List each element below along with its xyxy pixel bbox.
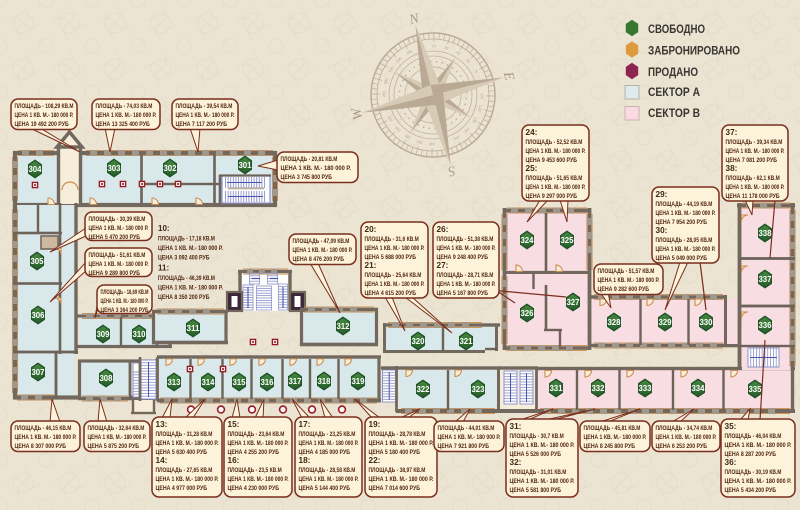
svg-text:334: 334 xyxy=(691,384,705,393)
svg-text:ПЛОЩАДЬ - 44,19 КВ.М: ПЛОЩАДЬ - 44,19 КВ.М xyxy=(656,201,713,208)
svg-text:ЦЕНА 9 453 600 РУБ: ЦЕНА 9 453 600 РУБ xyxy=(526,157,578,164)
svg-text:38:: 38: xyxy=(726,164,738,173)
svg-text:ПЛОЩАДЬ - 47,09 КВ.М: ПЛОЩАДЬ - 47,09 КВ.М xyxy=(293,238,350,245)
svg-text:307: 307 xyxy=(31,368,45,377)
svg-text:ЦЕНА 1 КВ. М.- 180 000 Р.: ЦЕНА 1 КВ. М.- 180 000 Р. xyxy=(365,245,425,252)
svg-text:ЦЕНА 4 255 200 РУБ: ЦЕНА 4 255 200 РУБ xyxy=(228,449,280,456)
svg-text:ЦЕНА 1 КВ. М.- 180 000 Р.: ЦЕНА 1 КВ. М.- 180 000 Р. xyxy=(156,476,219,483)
svg-text:ПЛОЩАДЬ - 27,65 КВ.М: ПЛОЩАДЬ - 27,65 КВ.М xyxy=(156,467,213,474)
svg-text:ПЛОЩАДЬ - 51,57 КВ.М: ПЛОЩАДЬ - 51,57 КВ.М xyxy=(598,268,655,275)
svg-text:25:: 25: xyxy=(526,164,538,173)
svg-text:ПЛОЩАДЬ - 17,18 КВ.М: ПЛОЩАДЬ - 17,18 КВ.М xyxy=(158,236,215,243)
svg-text:ЦЕНА 5 180 400 РУБ: ЦЕНА 5 180 400 РУБ xyxy=(369,449,421,456)
svg-text:330: 330 xyxy=(699,318,713,327)
svg-text:285: 285 xyxy=(382,91,386,97)
svg-text:ЦЕНА 1 КВ. М.- 180 000 Р.: ЦЕНА 1 КВ. М.- 180 000 Р. xyxy=(15,112,74,119)
svg-text:24:: 24: xyxy=(526,128,538,137)
svg-text:335: 335 xyxy=(748,385,762,394)
svg-text:ПЛОЩАДЬ - 52,52 КВ.М: ПЛОЩАДЬ - 52,52 КВ.М xyxy=(526,139,583,146)
svg-text:337: 337 xyxy=(758,275,772,284)
svg-text:ЦЕНА 19 492 200 РУБ: ЦЕНА 19 492 200 РУБ xyxy=(15,121,69,128)
svg-text:15: 15 xyxy=(432,44,436,48)
svg-text:СВОБОДНО: СВОБОДНО xyxy=(648,24,705,36)
svg-text:10:: 10: xyxy=(158,224,170,233)
svg-text:ЦЕНА 1 КВ. М.- 180 000 Р.: ЦЕНА 1 КВ. М.- 180 000 Р. xyxy=(437,281,496,288)
svg-text:ПЛОЩАДЬ - 38,97 КВ.М: ПЛОЩАДЬ - 38,97 КВ.М xyxy=(369,467,426,474)
svg-text:29:: 29: xyxy=(656,190,668,199)
svg-text:ЦЕНА 1 КВ. М.- 180 000 Р.: ЦЕНА 1 КВ. М.- 180 000 Р. xyxy=(656,246,716,253)
svg-text:ПЛОЩАДЬ - 30,7 КВ.М: ПЛОЩАДЬ - 30,7 КВ.М xyxy=(510,433,564,440)
svg-text:ЦЕНА 3 745 800 РУБ: ЦЕНА 3 745 800 РУБ xyxy=(281,174,333,181)
svg-text:ЦЕНА 1 КВ. М.- 180 000 Р.: ЦЕНА 1 КВ. М.- 180 000 Р. xyxy=(89,261,149,268)
svg-text:ЦЕНА 1 КВ. М.- 180 000 Р.: ЦЕНА 1 КВ. М.- 180 000 Р. xyxy=(89,225,149,232)
svg-text:ЦЕНА 1 КВ. М.- 180 000 Р.: ЦЕНА 1 КВ. М.- 180 000 Р. xyxy=(725,442,792,449)
svg-text:ЦЕНА 1 КВ. М.- 180 000 Р.: ЦЕНА 1 КВ. М.- 180 000 Р. xyxy=(101,298,149,305)
svg-text:ЦЕНА 1 КВ. М.- 180 000 Р.: ЦЕНА 1 КВ. М.- 180 000 Р. xyxy=(15,434,77,441)
svg-text:ЦЕНА 13 325 400 РУБ: ЦЕНА 13 325 400 РУБ xyxy=(96,121,150,128)
svg-text:ЦЕНА 1 КВ. М.- 180 000 Р.: ЦЕНА 1 КВ. М.- 180 000 Р. xyxy=(176,112,235,119)
svg-text:319: 319 xyxy=(351,377,365,386)
svg-text:17:: 17: xyxy=(299,420,311,429)
svg-text:15:: 15: xyxy=(228,420,240,429)
svg-text:ПЛОЩАДЬ - 62,1 КВ.М: ПЛОЩАДЬ - 62,1 КВ.М xyxy=(726,175,780,182)
svg-text:ЦЕНА 5 167 800 РУБ: ЦЕНА 5 167 800 РУБ xyxy=(437,290,489,297)
svg-text:338: 338 xyxy=(758,229,772,238)
svg-text:324: 324 xyxy=(520,236,534,245)
svg-text:ЦЕНА 5 526 000 РУБ: ЦЕНА 5 526 000 РУБ xyxy=(510,451,562,458)
svg-text:ЦЕНА 5 049 000 РУБ: ЦЕНА 5 049 000 РУБ xyxy=(656,255,708,262)
svg-text:ЦЕНА 7 954 200 РУБ: ЦЕНА 7 954 200 РУБ xyxy=(656,219,708,226)
svg-text:ПЛОЩАДЬ - 30,39 КВ.М: ПЛОЩАДЬ - 30,39 КВ.М xyxy=(89,216,146,223)
svg-text:322: 322 xyxy=(416,385,430,394)
svg-text:ЦЕНА 4 230 000 РУБ: ЦЕНА 4 230 000 РУБ xyxy=(228,485,280,492)
svg-text:32:: 32: xyxy=(510,458,522,467)
svg-text:301: 301 xyxy=(238,161,252,170)
svg-text:ЦЕНА 6 253 200 РУБ: ЦЕНА 6 253 200 РУБ xyxy=(656,443,708,450)
svg-text:31:: 31: xyxy=(510,422,522,431)
svg-text:ЦЕНА 4 615 200 РУБ: ЦЕНА 4 615 200 РУБ xyxy=(365,290,417,297)
svg-text:19:: 19: xyxy=(369,420,381,429)
svg-text:ЦЕНА 5 144 400 РУБ: ЦЕНА 5 144 400 РУБ xyxy=(299,485,351,492)
svg-text:ЦЕНА 9 282 600 РУБ: ЦЕНА 9 282 600 РУБ xyxy=(598,286,650,293)
svg-text:336: 336 xyxy=(758,321,772,330)
svg-text:ЦЕНА 7 014 600 РУБ: ЦЕНА 7 014 600 РУБ xyxy=(369,485,421,492)
svg-text:ЦЕНА 1 КВ. М.- 180 000 Р.: ЦЕНА 1 КВ. М.- 180 000 Р. xyxy=(228,476,289,483)
svg-text:ПЛОЩАДЬ - 23,64 КВ.М: ПЛОЩАДЬ - 23,64 КВ.М xyxy=(228,431,285,438)
svg-text:ЦЕНА 1 КВ. М.- 180 000 Р.: ЦЕНА 1 КВ. М.- 180 000 Р. xyxy=(656,210,716,217)
svg-text:326: 326 xyxy=(520,309,534,318)
svg-text:ПЛОЩАДЬ - 108,29 КВ.М: ПЛОЩАДЬ - 108,29 КВ.М xyxy=(15,103,74,110)
svg-text:309: 309 xyxy=(96,330,110,339)
svg-text:ЦЕНА 1 КВ. М.- 180 000 Р.: ЦЕНА 1 КВ. М.- 180 000 Р. xyxy=(369,476,434,483)
svg-text:105: 105 xyxy=(480,93,484,99)
svg-text:СЕКТОР А: СЕКТОР А xyxy=(648,87,700,99)
svg-text:ПЛОЩАДЬ - 20,81 КВ.М: ПЛОЩАДЬ - 20,81 КВ.М xyxy=(281,156,338,163)
svg-text:ЦЕНА 11 178 000 РУБ: ЦЕНА 11 178 000 РУБ xyxy=(726,193,780,200)
svg-text:ЦЕНА 4 185 000 РУБ: ЦЕНА 4 185 000 РУБ xyxy=(299,449,351,456)
svg-text:36:: 36: xyxy=(725,458,737,467)
svg-text:310: 310 xyxy=(132,330,146,339)
svg-text:27:: 27: xyxy=(437,261,449,270)
svg-text:14:: 14: xyxy=(156,456,168,465)
svg-text:СЕКТОР В: СЕКТОР В xyxy=(648,108,700,120)
svg-text:ЦЕНА 5 434 200 РУБ: ЦЕНА 5 434 200 РУБ xyxy=(725,487,777,494)
svg-text:ПЛОЩАДЬ - 31,28 КВ.М: ПЛОЩАДЬ - 31,28 КВ.М xyxy=(156,431,213,438)
svg-text:311: 311 xyxy=(186,324,200,333)
svg-text:ЦЕНА 8 287 200 РУБ: ЦЕНА 8 287 200 РУБ xyxy=(725,451,777,458)
svg-text:ПЛОЩАДЬ - 46,39 КВ.М: ПЛОЩАДЬ - 46,39 КВ.М xyxy=(158,275,215,282)
svg-text:ЦЕНА 1 КВ. М.- 180 000 Р.: ЦЕНА 1 КВ. М.- 180 000 Р. xyxy=(437,245,496,252)
svg-text:ЦЕНА 1 КВ. М.- 180 000 Р.: ЦЕНА 1 КВ. М.- 180 000 Р. xyxy=(656,434,717,441)
svg-text:ПЛОЩАДЬ - 46,15 КВ.М: ПЛОЩАДЬ - 46,15 КВ.М xyxy=(15,425,72,432)
svg-text:ЦЕНА 1 КВ. М.- 180 000 Р.: ЦЕНА 1 КВ. М.- 180 000 Р. xyxy=(299,476,359,483)
svg-text:ЦЕНА 1 КВ. М.- 180 000 Р.: ЦЕНА 1 КВ. М.- 180 000 Р. xyxy=(510,442,575,449)
svg-text:317: 317 xyxy=(288,377,302,386)
svg-text:ПЛОЩАДЬ - 74,03 КВ.М: ПЛОЩАДЬ - 74,03 КВ.М xyxy=(96,103,153,110)
svg-text:ПЛОЩАДЬ - 28,71 КВ.М: ПЛОЩАДЬ - 28,71 КВ.М xyxy=(437,272,494,279)
svg-text:ЦЕНА 4 977 000 РУБ: ЦЕНА 4 977 000 РУБ xyxy=(156,485,208,492)
svg-text:331: 331 xyxy=(549,384,563,393)
svg-text:ПЛОЩАДЬ - 39,54 КВ.М: ПЛОЩАДЬ - 39,54 КВ.М xyxy=(176,103,233,110)
svg-text:11:: 11: xyxy=(158,264,169,273)
svg-text:316: 316 xyxy=(260,378,274,387)
svg-text:35:: 35: xyxy=(725,422,737,431)
svg-text:ПЛОЩАДЬ - 46,04 КВ.М: ПЛОЩАДЬ - 46,04 КВ.М xyxy=(725,433,782,440)
svg-text:ЦЕНА 9 248 400 РУБ: ЦЕНА 9 248 400 РУБ xyxy=(437,254,489,261)
svg-text:ЦЕНА 7 921 800 РУБ: ЦЕНА 7 921 800 РУБ xyxy=(438,443,490,450)
svg-text:ЦЕНА 8 350 200 РУБ: ЦЕНА 8 350 200 РУБ xyxy=(158,294,210,301)
svg-text:ЦЕНА 1 КВ. М.- 180 000 Р.: ЦЕНА 1 КВ. М.- 180 000 Р. xyxy=(726,184,785,191)
svg-text:304: 304 xyxy=(28,165,42,174)
svg-text:16:: 16: xyxy=(228,456,240,465)
svg-text:ЦЕНА 1 КВ. М.- 180 000 Р.: ЦЕНА 1 КВ. М.- 180 000 Р. xyxy=(510,478,575,485)
svg-text:ПЛОЩАДЬ - 31,01 КВ.М: ПЛОЩАДЬ - 31,01 КВ.М xyxy=(510,469,567,476)
svg-text:30:: 30: xyxy=(656,226,668,235)
svg-text:ЦЕНА 1 КВ. М.- 180 000 Р.: ЦЕНА 1 КВ. М.- 180 000 Р. xyxy=(158,285,223,292)
svg-text:ПРОДАНО: ПРОДАНО xyxy=(648,67,698,79)
svg-text:ПЛОЩАДЬ - 30,19 КВ.М: ПЛОЩАДЬ - 30,19 КВ.М xyxy=(725,469,782,476)
svg-text:ПЛОЩАДЬ - 45,81 КВ.М: ПЛОЩАДЬ - 45,81 КВ.М xyxy=(584,425,641,432)
svg-text:312: 312 xyxy=(336,322,350,331)
svg-text:ЦЕНА 9 297 000 РУБ: ЦЕНА 9 297 000 РУБ xyxy=(526,193,578,200)
svg-text:314: 314 xyxy=(201,378,215,387)
svg-text:ПЛОЩАДЬ - 39,34 КВ.М: ПЛОЩАДЬ - 39,34 КВ.М xyxy=(726,139,783,146)
svg-text:306: 306 xyxy=(31,311,45,320)
svg-text:21:: 21: xyxy=(365,261,377,270)
svg-text:ЦЕНА 9 289 800 РУБ: ЦЕНА 9 289 800 РУБ xyxy=(89,270,141,277)
svg-text:325: 325 xyxy=(560,236,574,245)
svg-text:ПЛОЩАДЬ - 44,01 КВ.М: ПЛОЩАДЬ - 44,01 КВ.М xyxy=(438,425,495,432)
svg-text:ЦЕНА 3 092 400 РУБ: ЦЕНА 3 092 400 РУБ xyxy=(158,255,210,262)
svg-text:ЦЕНА 1 КВ. М.- 180 000 Р.: ЦЕНА 1 КВ. М.- 180 000 Р. xyxy=(725,478,792,485)
svg-text:ЦЕНА 1 КВ. М.- 180 000 Р.: ЦЕНА 1 КВ. М.- 180 000 Р. xyxy=(96,112,157,119)
svg-text:ЦЕНА 5 581 800 РУБ: ЦЕНА 5 581 800 РУБ xyxy=(510,487,562,494)
svg-text:ЦЕНА 5 630 400 РУБ: ЦЕНА 5 630 400 РУБ xyxy=(156,449,208,456)
svg-text:333: 333 xyxy=(638,384,652,393)
svg-text:ПЛОЩАДЬ - 51,61 КВ.М: ПЛОЩАДЬ - 51,61 КВ.М xyxy=(89,252,146,259)
svg-text:ЦЕНА 1 КВ. М.- 180 000 Р.: ЦЕНА 1 КВ. М.- 180 000 Р. xyxy=(228,440,289,447)
svg-text:18:: 18: xyxy=(299,456,311,465)
svg-text:ЦЕНА 8 476 200 РУБ: ЦЕНА 8 476 200 РУБ xyxy=(293,256,345,263)
svg-text:ЦЕНА 1 КВ. М.- 180 000 Р.: ЦЕНА 1 КВ. М.- 180 000 Р. xyxy=(156,440,219,447)
svg-text:323: 323 xyxy=(471,385,485,394)
svg-text:315: 315 xyxy=(232,378,246,387)
svg-text:ПЛОЩАДЬ - 32,64 КВ.М: ПЛОЩАДЬ - 32,64 КВ.М xyxy=(88,425,145,432)
svg-text:ЦЕНА 7 081 200 РУБ: ЦЕНА 7 081 200 РУБ xyxy=(726,157,778,164)
svg-text:308: 308 xyxy=(99,374,113,383)
svg-text:ЦЕНА 1 КВ. М.- 180 000 Р.: ЦЕНА 1 КВ. М.- 180 000 Р. xyxy=(299,440,359,447)
svg-text:ПЛОЩАДЬ - 28,78 КВ.М: ПЛОЩАДЬ - 28,78 КВ.М xyxy=(369,431,426,438)
svg-text:320: 320 xyxy=(411,337,425,346)
svg-text:ЦЕНА 3 364 200 РУБ: ЦЕНА 3 364 200 РУБ xyxy=(101,307,149,314)
svg-text:20:: 20: xyxy=(365,225,377,234)
svg-text:ЦЕНА 1 КВ. М.- 180 000 Р.: ЦЕНА 1 КВ. М.- 180 000 Р. xyxy=(526,148,586,155)
svg-text:302: 302 xyxy=(163,164,177,173)
svg-text:ПЛОЩАДЬ - 18,69 КВ.М: ПЛОЩАДЬ - 18,69 КВ.М xyxy=(101,289,149,296)
svg-text:ЦЕНА 5 875 200 РУБ: ЦЕНА 5 875 200 РУБ xyxy=(88,443,140,450)
svg-text:ЦЕНА 1 КВ. М.- 180 000 Р.: ЦЕНА 1 КВ. М.- 180 000 Р. xyxy=(584,434,647,441)
svg-text:ЦЕНА 1 КВ. М.- 180 000 Р.: ЦЕНА 1 КВ. М.- 180 000 Р. xyxy=(598,277,660,284)
svg-text:305: 305 xyxy=(30,257,44,266)
svg-text:329: 329 xyxy=(658,318,672,327)
svg-text:ПЛОЩАДЬ - 51,38 КВ.М: ПЛОЩАДЬ - 51,38 КВ.М xyxy=(437,236,494,243)
svg-text:ЦЕНА 1 КВ. М.- 180 000 Р.: ЦЕНА 1 КВ. М.- 180 000 Р. xyxy=(88,434,147,441)
svg-text:13:: 13: xyxy=(156,420,168,429)
svg-text:ЦЕНА 5 688 000 РУБ: ЦЕНА 5 688 000 РУБ xyxy=(365,254,417,261)
svg-text:ПЛОЩАДЬ - 28,05 КВ.М: ПЛОЩАДЬ - 28,05 КВ.М xyxy=(656,237,713,244)
svg-text:327: 327 xyxy=(566,298,580,307)
svg-text:ЦЕНА 1 КВ. М.- 180 000 Р.: ЦЕНА 1 КВ. М.- 180 000 Р. xyxy=(526,184,586,191)
svg-text:ПЛОЩАДЬ - 25,64 КВ.М: ПЛОЩАДЬ - 25,64 КВ.М xyxy=(365,272,422,279)
svg-text:328: 328 xyxy=(607,318,621,327)
svg-text:26:: 26: xyxy=(437,225,449,234)
svg-text:ЦЕНА 7 117 200 РУБ: ЦЕНА 7 117 200 РУБ xyxy=(176,121,228,128)
svg-text:ПЛОЩАДЬ - 31,6 КВ.М: ПЛОЩАДЬ - 31,6 КВ.М xyxy=(365,236,419,243)
svg-text:ЦЕНА 1 КВ. М.- 180 000 Р.: ЦЕНА 1 КВ. М.- 180 000 Р. xyxy=(365,281,425,288)
svg-text:ЦЕНА 1 КВ. М.- 180 000 Р.: ЦЕНА 1 КВ. М.- 180 000 Р. xyxy=(726,148,785,155)
svg-text:ЦЕНА 8 245 800 РУБ: ЦЕНА 8 245 800 РУБ xyxy=(584,443,636,450)
svg-text:ЦЕНА 1 КВ. М.- 180 000 Р.: ЦЕНА 1 КВ. М.- 180 000 Р. xyxy=(369,440,434,447)
svg-text:ПЛОЩАДЬ - 51,65 КВ.М: ПЛОЩАДЬ - 51,65 КВ.М xyxy=(526,175,583,182)
svg-text:ЦЕНА 1 КВ. М.- 180 000 Р.: ЦЕНА 1 КВ. М.- 180 000 Р. xyxy=(158,245,223,252)
svg-text:ЦЕНА 1 КВ. М.- 180 000 Р.: ЦЕНА 1 КВ. М.- 180 000 Р. xyxy=(293,247,353,254)
svg-text:ПЛОЩАДЬ - 23,25 КВ.М: ПЛОЩАДЬ - 23,25 КВ.М xyxy=(299,431,356,438)
svg-text:37:: 37: xyxy=(726,128,738,137)
svg-text:332: 332 xyxy=(591,384,605,393)
svg-text:22:: 22: xyxy=(369,456,381,465)
svg-text:ПЛОЩАДЬ - 34,74 КВ.М: ПЛОЩАДЬ - 34,74 КВ.М xyxy=(656,425,713,432)
svg-text:195: 195 xyxy=(429,142,435,146)
svg-text:ЦЕНА 1 КВ. М.- 180 000 Р.: ЦЕНА 1 КВ. М.- 180 000 Р. xyxy=(438,434,501,441)
svg-text:ПЛОЩАДЬ - 28,58 КВ.М: ПЛОЩАДЬ - 28,58 КВ.М xyxy=(299,467,356,474)
svg-text:318: 318 xyxy=(317,377,331,386)
svg-text:321: 321 xyxy=(459,337,473,346)
svg-text:ПЛОЩАДЬ - 23,5 КВ.М: ПЛОЩАДЬ - 23,5 КВ.М xyxy=(228,467,282,474)
svg-text:ЦЕНА 5 470 200 РУБ: ЦЕНА 5 470 200 РУБ xyxy=(89,234,141,241)
svg-text:ЦЕНА 8 307 000 РУБ: ЦЕНА 8 307 000 РУБ xyxy=(15,443,67,450)
svg-text:ЦЕНА 1 КВ. М.- 180 000 Р.: ЦЕНА 1 КВ. М.- 180 000 Р. xyxy=(281,165,352,172)
svg-text:303: 303 xyxy=(107,164,121,173)
svg-text:ЗАБРОНИРОВАНО: ЗАБРОНИРОВАНО xyxy=(648,46,740,58)
svg-text:313: 313 xyxy=(167,378,181,387)
